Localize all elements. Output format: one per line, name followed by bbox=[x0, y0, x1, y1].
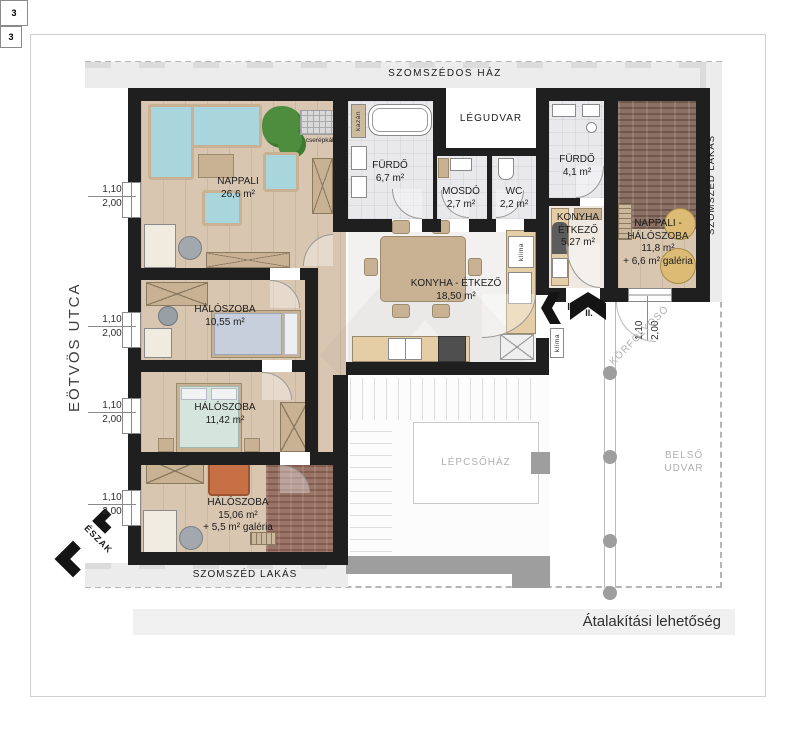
wall-segment bbox=[346, 219, 392, 232]
stair-treads bbox=[350, 378, 536, 420]
toilet bbox=[498, 158, 514, 180]
window-width: 1,10 bbox=[88, 492, 136, 505]
window-dimension: 1,10 2,00 bbox=[88, 492, 136, 517]
desk-chair bbox=[178, 236, 202, 260]
column-dot bbox=[603, 586, 617, 600]
armchair bbox=[208, 462, 250, 496]
room-name: NAPPALI - bbox=[606, 218, 710, 231]
room-name: FÜRDŐ bbox=[350, 160, 430, 173]
wall-segment bbox=[536, 88, 710, 101]
room-label-halo1: HÁLÓSZOBA 10,55 m² bbox=[150, 304, 300, 329]
gray-wall bbox=[346, 556, 550, 574]
wall-segment bbox=[333, 375, 348, 552]
column-dot bbox=[603, 534, 617, 548]
window-width: 1,10 bbox=[88, 400, 136, 413]
window-height: 2,00 bbox=[88, 506, 136, 517]
room-label-halo3: HÁLÓSZOBA 15,06 m² + 5,5 m² galéria bbox=[163, 497, 313, 535]
wall-segment bbox=[422, 219, 441, 232]
landing-block bbox=[531, 452, 550, 474]
floor-plan-sheet: SZOMSZÉDOS HÁZ SZOMSZÉD LAKÁS SZOMSZÉD L… bbox=[0, 0, 800, 732]
wall-segment bbox=[469, 219, 496, 232]
window-height: 2,00 bbox=[88, 328, 136, 339]
kitchen-sink bbox=[388, 338, 422, 360]
nightstand bbox=[244, 438, 260, 452]
boiler: kazán bbox=[351, 104, 366, 138]
room-gallery: + 6,6 m² galéria bbox=[606, 256, 710, 269]
window-height: 2,00 bbox=[88, 414, 136, 425]
washing-machine: 3 bbox=[0, 0, 28, 26]
wall-segment bbox=[128, 552, 348, 565]
appliance bbox=[552, 258, 568, 278]
pillow bbox=[181, 388, 207, 400]
north-arrow-icon bbox=[55, 541, 92, 578]
gray-wall bbox=[512, 574, 550, 588]
wall-segment bbox=[549, 198, 580, 206]
courtyard-label: BELSŐ UDVAR bbox=[648, 450, 720, 475]
room-label-wc: WC 2,2 m² bbox=[484, 186, 544, 211]
dining-chair bbox=[432, 304, 450, 318]
sink bbox=[450, 158, 472, 171]
wall-segment bbox=[128, 268, 270, 280]
room-area: 26,6 m² bbox=[158, 189, 318, 202]
dining-chair bbox=[392, 220, 410, 234]
washing-machine: 3 bbox=[0, 26, 22, 48]
sink bbox=[552, 104, 576, 117]
room-area: 2,2 m² bbox=[484, 199, 544, 212]
room-label-nappali: NAPPALI 26,6 m² bbox=[158, 176, 318, 201]
room-area: 18,50 m² bbox=[375, 291, 537, 304]
room-name: HÁLÓSZOBA bbox=[163, 497, 313, 510]
drain-symbol bbox=[586, 122, 597, 133]
room-name: HÁLÓSZOBA bbox=[150, 402, 300, 415]
room-name: HÁLÓSZOBA bbox=[606, 231, 710, 244]
wall-segment bbox=[128, 360, 262, 372]
wall-segment bbox=[437, 148, 536, 156]
room-area: 15,06 m² bbox=[163, 510, 313, 523]
room-area: 11,8 m² bbox=[606, 243, 710, 256]
room-label-legudvar: LÉGUDVAR bbox=[446, 113, 536, 126]
tiled-stove-label: cserépkályha bbox=[278, 137, 344, 145]
room-label-halo2: HÁLÓSZOBA 11,42 m² bbox=[150, 402, 300, 427]
room-area: 11,42 m² bbox=[150, 415, 300, 428]
wall-segment bbox=[128, 452, 280, 465]
desk bbox=[144, 224, 176, 268]
room-area: 4,1 m² bbox=[540, 167, 614, 180]
room-label-konyha-nagy: KONYHA - ÉTKEZŐ 18,50 m² bbox=[375, 278, 537, 303]
street-label: EÖTVÖS UTCA bbox=[66, 280, 85, 415]
cabinet bbox=[500, 334, 534, 360]
wall-segment bbox=[128, 88, 446, 101]
room-name: FÜRDŐ bbox=[540, 154, 614, 167]
wall-segment bbox=[305, 280, 318, 452]
room-name: WC bbox=[484, 186, 544, 199]
room-area: 6,7 m² bbox=[350, 173, 430, 186]
air-conditioner: klíma bbox=[550, 328, 564, 358]
window-dimension: 1,10 2,00 bbox=[88, 314, 136, 339]
dining-chair bbox=[468, 258, 482, 276]
nightstand bbox=[158, 438, 174, 452]
coffee-table bbox=[198, 154, 234, 178]
room-label-furdo1: FÜRDŐ 6,7 m² bbox=[350, 160, 430, 185]
room-name: KONYHA - ÉTKEZŐ bbox=[375, 278, 537, 291]
window-dimension: 1,10 2,00 bbox=[88, 400, 136, 425]
neighbor-bottom-label: SZOMSZÉD LAKÁS bbox=[120, 569, 370, 582]
wall-segment bbox=[604, 101, 618, 302]
stairwell-box: LÉPCSŐHÁZ bbox=[413, 422, 539, 504]
wall-segment bbox=[300, 268, 318, 280]
neighbor-top-label: SZOMSZÉDOS HÁZ bbox=[285, 68, 605, 81]
entrance-arrow-1-icon bbox=[541, 292, 561, 324]
column-dot bbox=[603, 450, 617, 464]
bathtub bbox=[368, 104, 432, 136]
cabinet bbox=[582, 104, 600, 117]
pillow bbox=[211, 388, 237, 400]
room-area: 10,55 m² bbox=[150, 317, 300, 330]
window-width: 1,10 bbox=[88, 184, 136, 197]
room-name: NAPPALI bbox=[158, 176, 318, 189]
dining-chair bbox=[364, 258, 378, 276]
drawing-title: Átalakítási lehetőség bbox=[133, 609, 735, 635]
stove bbox=[438, 336, 466, 362]
wardrobe bbox=[146, 282, 208, 306]
sideboard bbox=[206, 252, 290, 268]
room-gallery: + 5,5 m² galéria bbox=[163, 522, 313, 535]
air-conditioner: klíma bbox=[508, 236, 534, 268]
desk bbox=[144, 328, 172, 358]
wall-segment bbox=[672, 288, 710, 302]
room-label-nappali-halo: NAPPALI - HÁLÓSZOBA 11,8 m² + 6,6 m² gal… bbox=[606, 218, 710, 268]
north-arrow: ÉSZAK bbox=[56, 508, 138, 590]
wall-segment bbox=[346, 362, 549, 375]
wall-segment bbox=[524, 219, 536, 232]
sofa bbox=[148, 104, 194, 180]
stair-treads bbox=[350, 420, 392, 552]
dining-chair bbox=[392, 304, 410, 318]
room-label-furdo2: FÜRDŐ 4,1 m² bbox=[540, 154, 614, 179]
cabinet bbox=[438, 158, 449, 178]
room-name: HÁLÓSZOBA bbox=[150, 304, 300, 317]
window-height: 2,00 bbox=[88, 198, 136, 209]
stairwell-label: LÉPCSŐHÁZ bbox=[441, 457, 511, 470]
wall-segment bbox=[333, 101, 348, 232]
window-dimension: 1,10 2,00 bbox=[88, 184, 136, 209]
entrance-2-label: II. bbox=[580, 308, 598, 319]
window-width: 1,10 bbox=[88, 314, 136, 327]
